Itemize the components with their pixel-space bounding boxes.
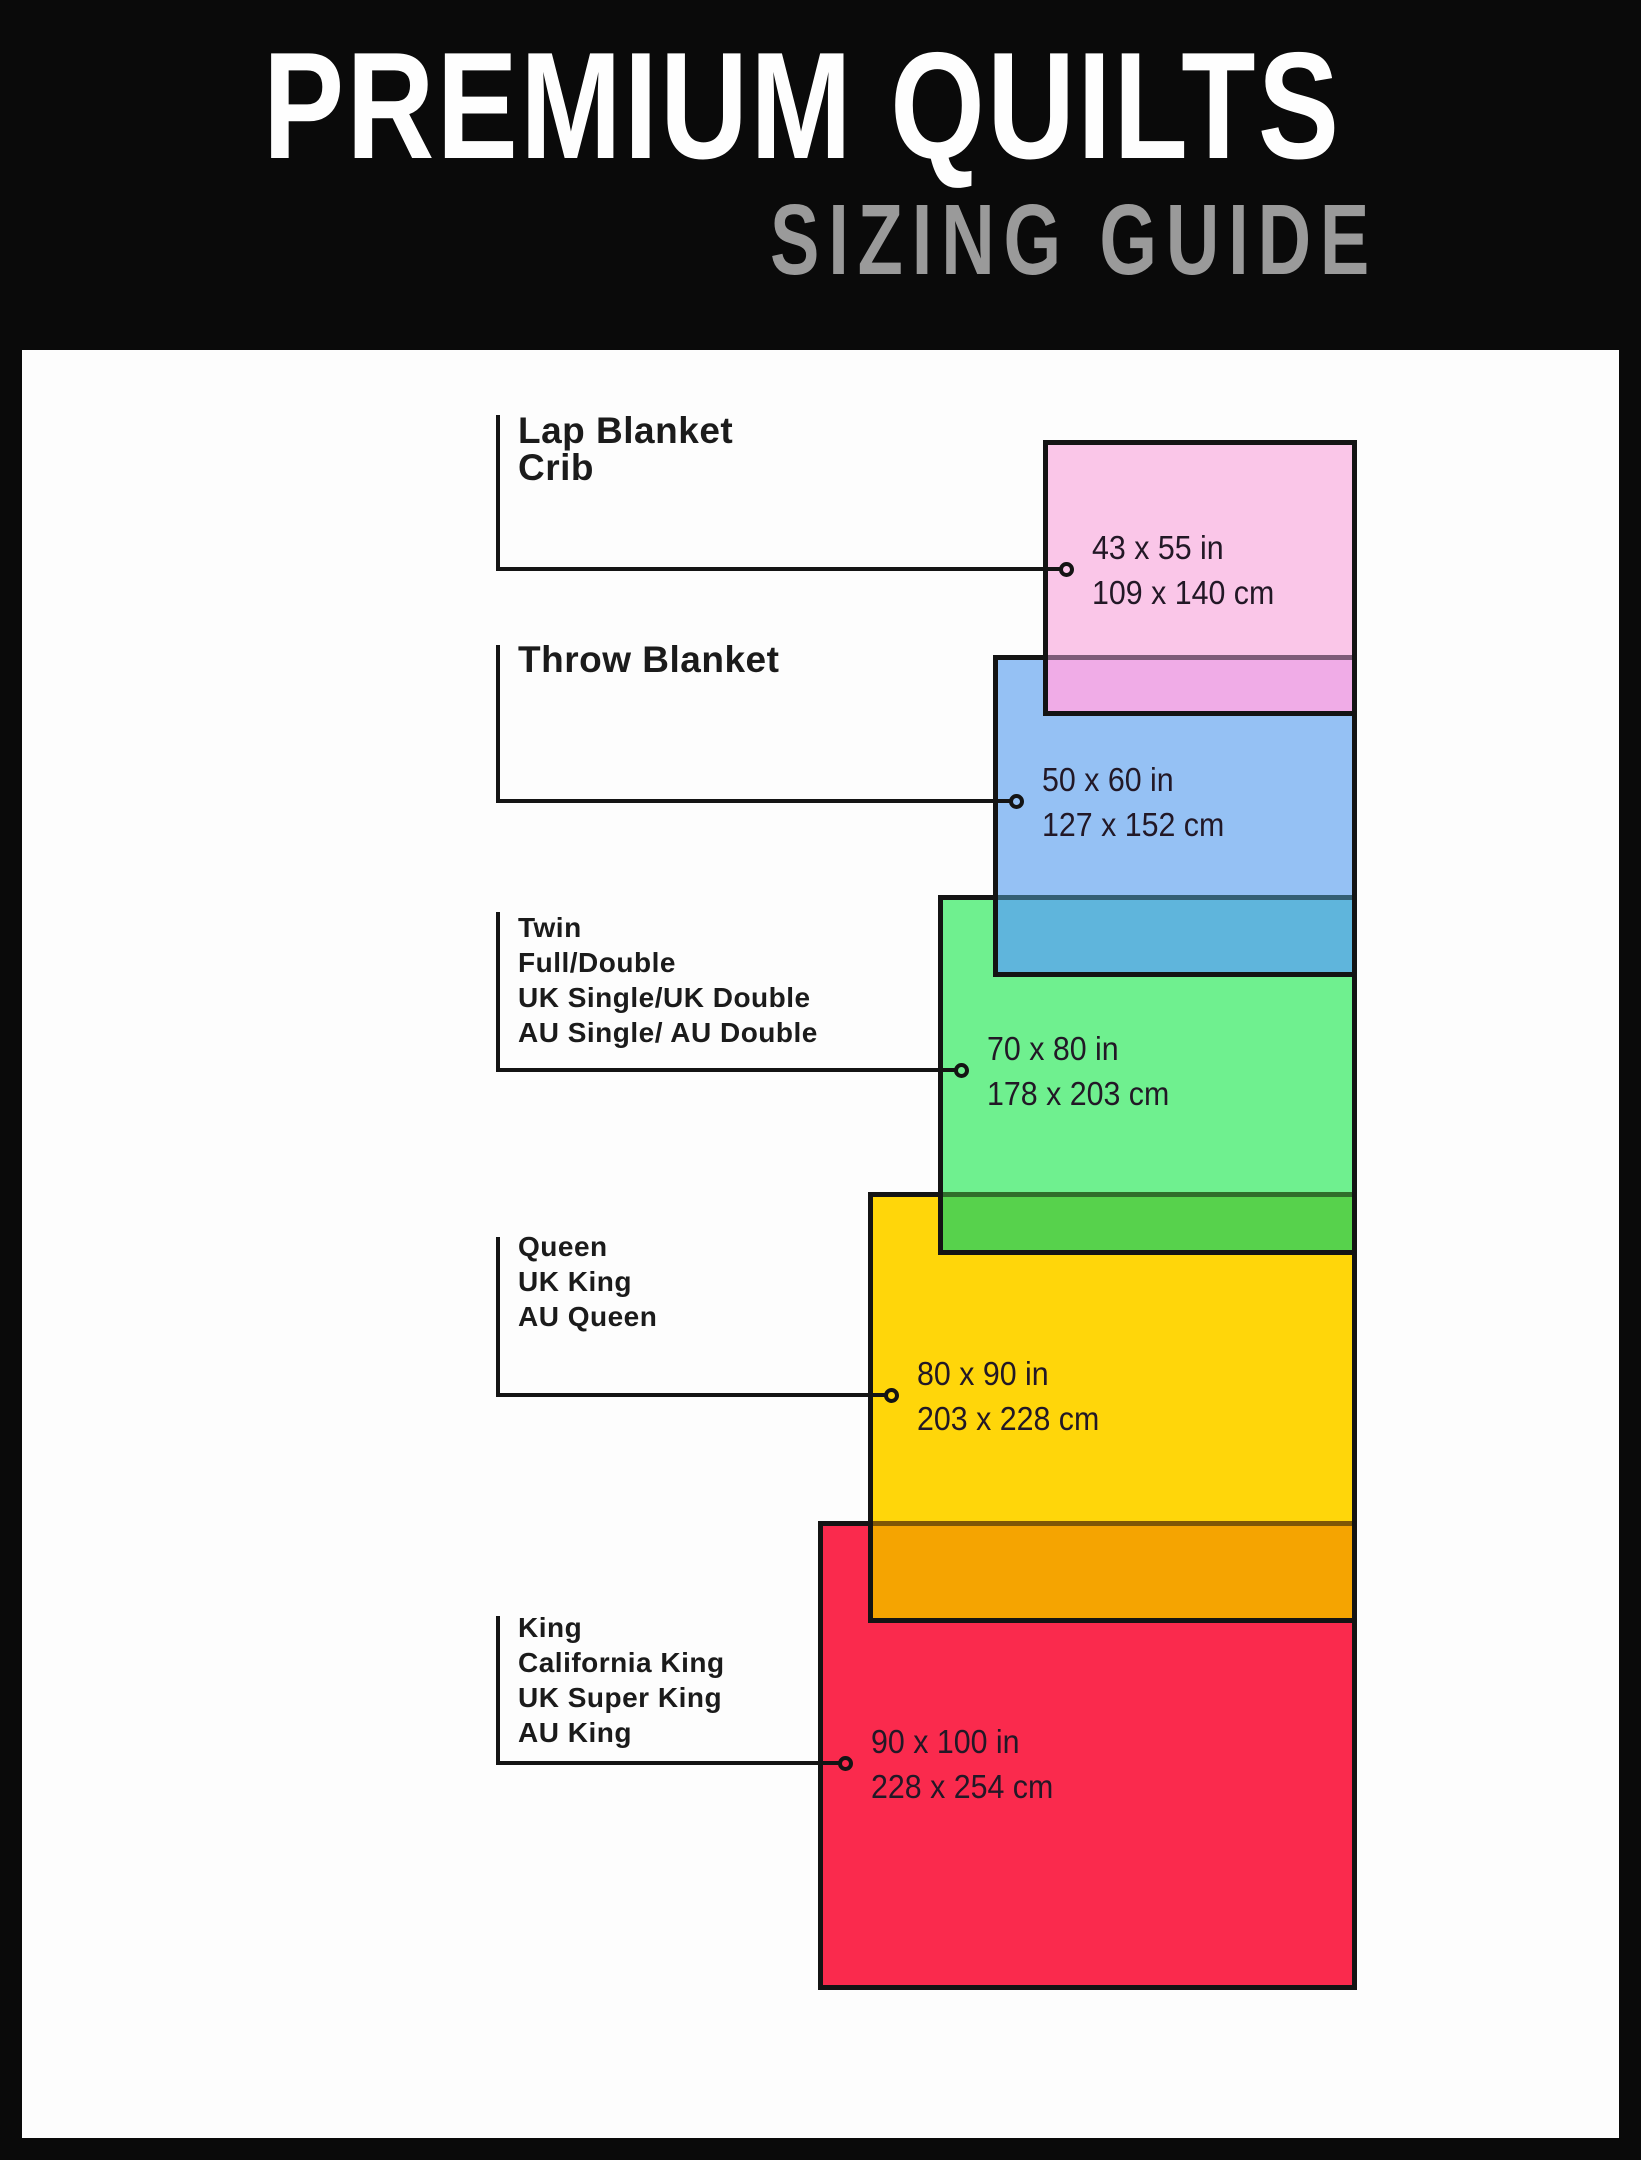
connector-dot-queen [884,1388,899,1403]
size-label-cm: 127 x 152 cm [1042,802,1224,847]
label-line: UK Super King [518,1680,725,1715]
overlap-band-yellow-red [873,1521,1352,1618]
size-label-king: 90 x 100 in 228 x 254 cm [871,1719,1053,1809]
label-line: Queen [518,1229,657,1264]
label-line: Full/Double [518,945,818,980]
size-label-in: 80 x 90 in [917,1351,1099,1396]
connector-vline-twin [496,912,500,1070]
size-label-cm: 109 x 140 cm [1092,570,1274,615]
label-line: AU King [518,1715,725,1750]
connector-hline-queen [496,1393,887,1397]
page-title: PREMIUM QUILTS [263,30,1341,182]
connector-vline-queen [496,1237,500,1395]
connector-hline-king [496,1761,841,1765]
size-label-cm: 228 x 254 cm [871,1764,1053,1809]
connector-dot-twin [954,1063,969,1078]
label-line: Lap Blanket [518,412,733,449]
connector-dot-throw [1009,794,1024,809]
size-label-cm: 178 x 203 cm [987,1071,1169,1116]
label-line: Throw Blanket [518,641,779,678]
size-label-in: 50 x 60 in [1042,757,1224,802]
connector-vline-lap [496,415,500,569]
connector-vline-throw [496,645,500,801]
overlap-band-green-yellow [943,1192,1352,1250]
overlap-band-pink-blue [1048,655,1352,711]
connector-hline-throw [496,799,1012,803]
connector-hline-twin [496,1068,957,1072]
size-label-lap: 43 x 55 in 109 x 140 cm [1092,525,1274,615]
size-label-throw: 50 x 60 in 127 x 152 cm [1042,757,1224,847]
label-group-king: King California King UK Super King AU Ki… [518,1610,725,1750]
size-label-twin: 70 x 80 in 178 x 203 cm [987,1026,1169,1116]
label-line: King [518,1610,725,1645]
connector-dot-lap [1059,562,1074,577]
size-label-cm: 203 x 228 cm [917,1396,1099,1441]
size-label-in: 43 x 55 in [1092,525,1274,570]
label-group-twin: Twin Full/Double UK Single/UK Double AU … [518,910,818,1050]
size-label-in: 70 x 80 in [987,1026,1169,1071]
label-line: Twin [518,910,818,945]
label-line: Crib [518,449,733,486]
size-label-in: 90 x 100 in [871,1719,1053,1764]
label-group-queen: Queen UK King AU Queen [518,1229,657,1334]
label-line: UK King [518,1264,657,1299]
label-line: UK Single/UK Double [518,980,818,1015]
label-line: California King [518,1645,725,1680]
infographic-page: PREMIUM QUILTS SIZING GUIDE Lap Blanket … [0,0,1641,2160]
label-line: AU Single/ AU Double [518,1015,818,1050]
connector-dot-king [838,1756,853,1771]
overlap-band-blue-green [998,895,1352,972]
label-line: AU Queen [518,1299,657,1334]
header-banner: PREMIUM QUILTS SIZING GUIDE [0,0,1641,350]
size-label-queen: 80 x 90 in 203 x 228 cm [917,1351,1099,1441]
connector-vline-king [496,1616,500,1763]
page-subtitle: SIZING GUIDE [770,190,1378,290]
label-group-throw-blanket: Throw Blanket [518,641,779,678]
connector-hline-lap [496,567,1062,571]
label-group-lap-blanket: Lap Blanket Crib [518,412,733,486]
